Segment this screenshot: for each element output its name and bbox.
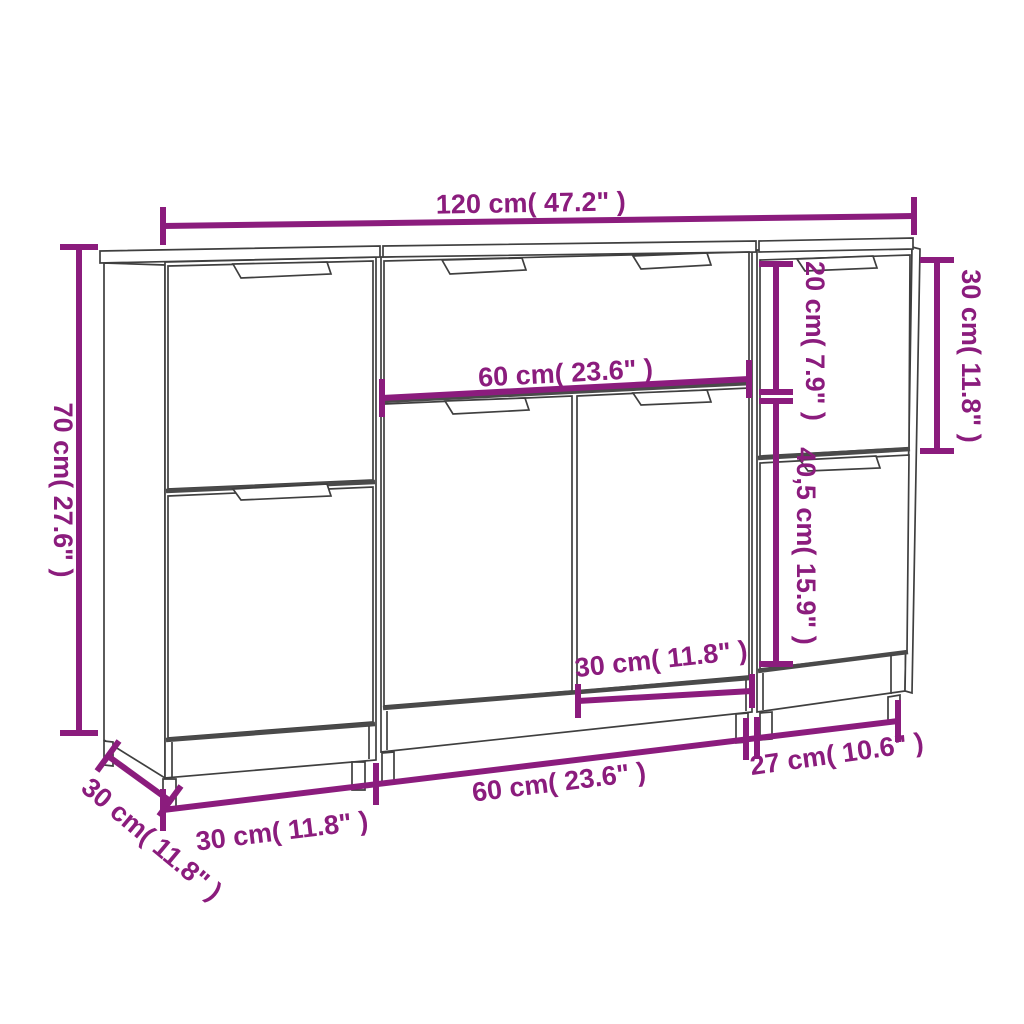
middle-right-door-handle-icon (633, 390, 711, 405)
dim-bottom-left-width-label: 30 cm( 11.8" ) (194, 806, 370, 857)
right-cabinet-top-door (760, 255, 910, 456)
dim-right-door-height: 30 cm( 11.8" ) (920, 260, 986, 451)
dim-overall-height: 70 cm( 27.6" ) (48, 247, 98, 733)
left-cabinet-side-panel (104, 263, 165, 778)
dim-right-drawer-height-label: 20 cm( 7.9" ) (800, 261, 830, 421)
left-cabinet-top-door (168, 261, 373, 489)
left-cabinet (100, 246, 380, 807)
dim-overall-width-label: 120 cm( 47.2" ) (436, 186, 626, 219)
dim-overall-height-label: 70 cm( 27.6" ) (48, 403, 78, 578)
right-cabinet-bottom-door (760, 455, 909, 669)
dim-right-door-height-label: 30 cm( 11.8" ) (956, 269, 986, 442)
right-cabinet-top-slab (759, 238, 913, 252)
middle-cabinet-left-door (384, 396, 572, 706)
left-cabinet-bottom-door (168, 487, 373, 738)
middle-cabinet (381, 241, 756, 782)
dimension-diagram: 120 cm( 47.2" ) 70 cm( 27.6" ) 30 cm( 11… (0, 0, 1024, 1024)
middle-cabinet-left-foot (382, 752, 394, 782)
dim-right-lower-height-label: 40,5 cm( 15.9" ) (791, 447, 821, 644)
sideboard-diagram-canvas: 120 cm( 47.2" ) 70 cm( 27.6" ) 30 cm( 11… (0, 0, 1024, 1024)
dim-overall-width: 120 cm( 47.2" ) (163, 186, 914, 245)
